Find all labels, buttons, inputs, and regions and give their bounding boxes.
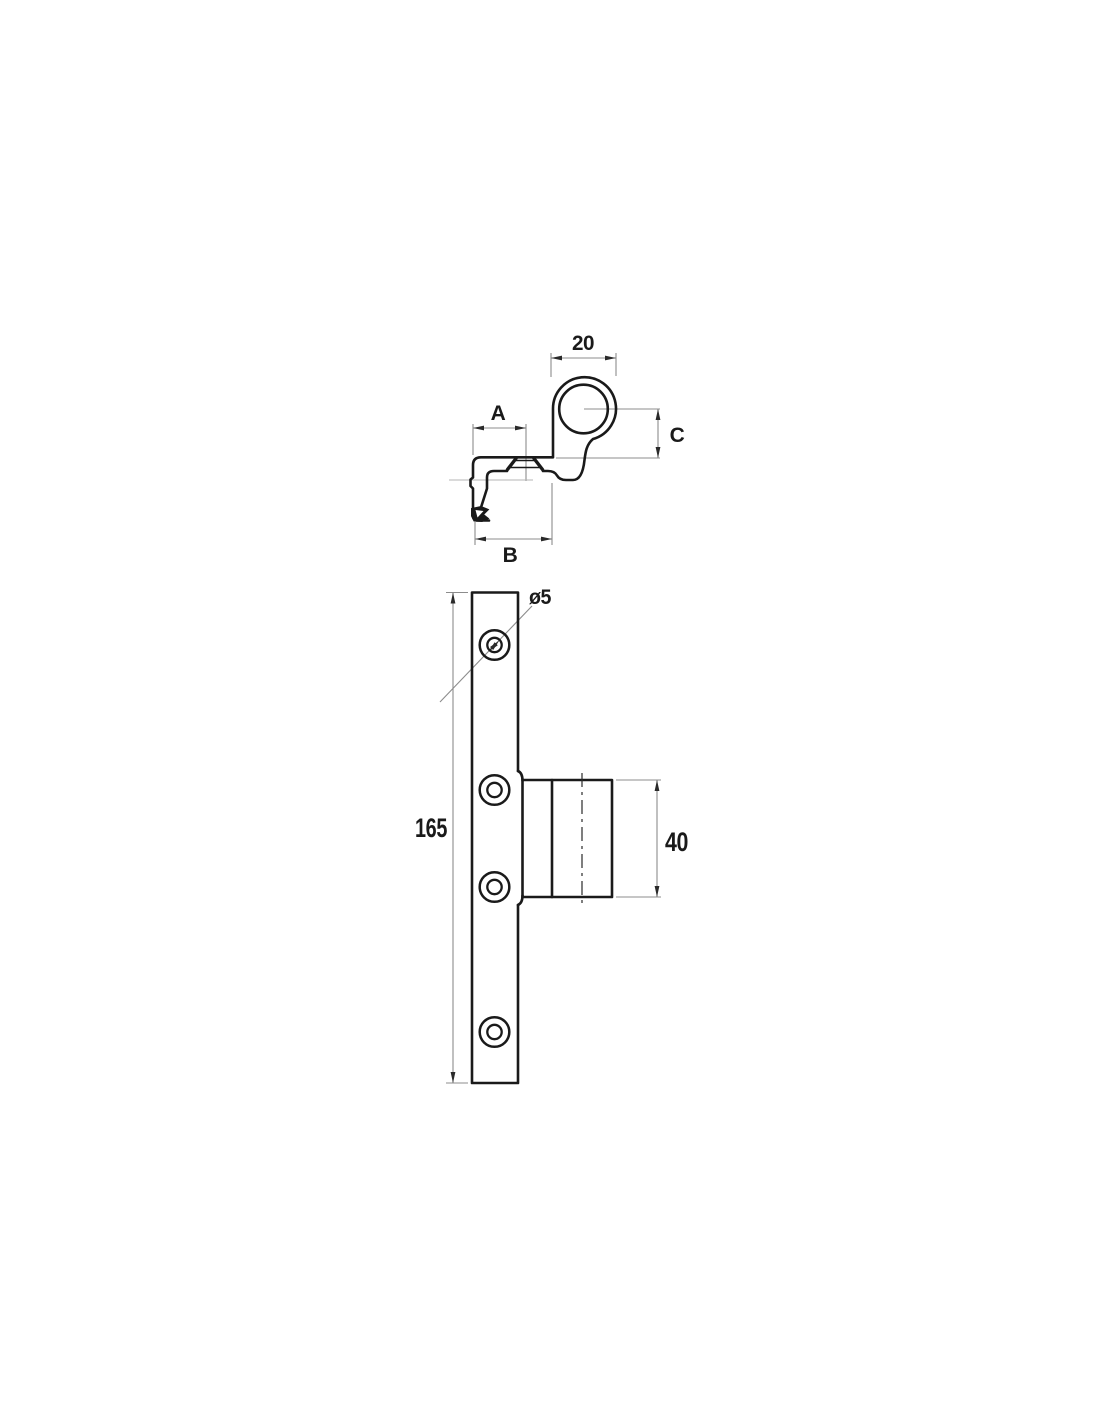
profile-inner-contour [481,471,508,509]
arrow-icon [475,537,486,542]
side-view: 20 A C B [449,332,685,567]
arrow-icon [656,447,661,458]
dim-label-hole-diameter: ø5 [529,586,552,609]
plate-outline [472,593,518,1084]
hole-outer-circle [480,872,510,902]
hole-inner-circle [487,880,501,894]
dim-label-plate-length: 165 [415,813,447,843]
arrow-icon [515,426,526,431]
barrel-outline [523,780,613,897]
front-view-arrows [451,593,660,1084]
dim-label-barrel-height: 40 [665,827,688,857]
front-view-outline [472,593,612,1084]
front-view-dimension-lines [453,593,657,1084]
arrow-icon [473,426,484,431]
arrow-icon [551,356,562,361]
arrow-icon [451,593,456,604]
technical-drawing: 20 A C B [0,0,1100,1422]
arrow-icon [451,1072,456,1083]
leg-foot [472,507,489,522]
arrow-icon [655,886,660,897]
arrow-icon [605,356,616,361]
countersink-detail [508,459,543,470]
front-view: ø5 165 40 [415,586,688,1083]
hole-inner-circle [487,1025,501,1039]
hole-inner-circle [487,783,501,797]
hole-outer-circle [480,1017,510,1047]
dim-label-ring-width: 20 [572,332,594,355]
dim-label-depth-b: B [503,544,518,567]
screw-holes [480,630,510,1047]
profile-outer-contour [471,377,616,520]
dim-label-offset-a: A [491,402,506,425]
hole-outer-circle [480,775,510,805]
dim-label-height-c: C [670,424,685,447]
arrow-icon [656,409,661,420]
arrow-icon [541,537,552,542]
drawing-canvas: 20 A C B [0,0,1100,1422]
side-view-profile [471,377,616,520]
arrow-icon [655,780,660,791]
